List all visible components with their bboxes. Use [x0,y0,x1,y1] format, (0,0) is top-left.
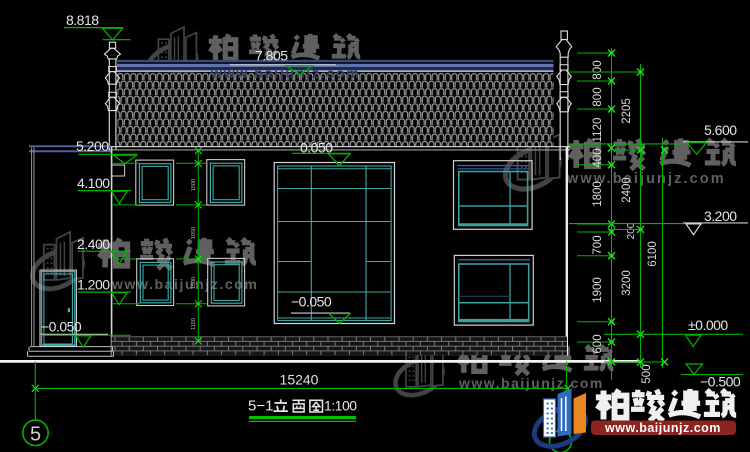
svg-text:5: 5 [30,424,41,446]
svg-text:www.baijunjz.com: www.baijunjz.com [604,421,721,435]
svg-text:1:100: 1:100 [324,398,357,414]
svg-text:−0.050: −0.050 [41,319,82,335]
svg-text:5.600: 5.600 [704,122,737,138]
svg-text:www.baijunjz.com: www.baijunjz.com [210,65,361,81]
svg-text:1950: 1950 [191,227,197,239]
svg-text:1150: 1150 [191,318,197,330]
svg-text:2400: 2400 [621,177,633,203]
svg-text:1800: 1800 [592,181,604,207]
svg-text:1120: 1120 [592,118,604,143]
svg-text:−0.050: −0.050 [291,294,332,310]
svg-text:200: 200 [626,222,637,239]
svg-text:1.200: 1.200 [77,277,110,293]
svg-text:5−1: 5−1 [248,398,273,415]
svg-text:3.200: 3.200 [704,208,737,224]
svg-text:−0.500: −0.500 [700,374,741,390]
svg-text:www.baijunjz.com: www.baijunjz.com [111,276,258,292]
svg-text:±0.000: ±0.000 [688,317,728,333]
svg-text:15240: 15240 [280,372,319,388]
svg-text:1900: 1900 [592,277,604,303]
svg-text:600: 600 [592,334,604,353]
svg-text:400: 400 [592,148,604,167]
svg-text:2205: 2205 [621,98,633,124]
svg-text:5.200: 5.200 [76,138,109,154]
svg-text:3200: 3200 [621,270,633,296]
svg-text:6100: 6100 [647,241,659,267]
svg-text:7.805: 7.805 [255,48,288,64]
svg-text:www.baijunjz.com: www.baijunjz.com [566,171,726,187]
svg-text:1500: 1500 [191,179,197,191]
svg-text:8.818: 8.818 [66,12,99,28]
svg-text:700: 700 [592,235,604,254]
svg-text:800: 800 [592,60,604,79]
svg-text:1500: 1500 [191,277,197,289]
svg-text:4.100: 4.100 [77,175,110,191]
svg-text:800: 800 [592,87,604,106]
svg-text:500: 500 [641,364,653,383]
svg-text:2.400: 2.400 [77,236,110,252]
